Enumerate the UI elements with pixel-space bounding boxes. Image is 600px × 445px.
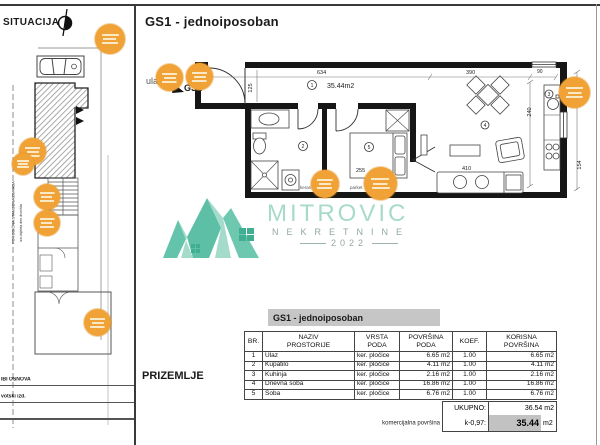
table-header-row: BR. NAZIVPROSTORIJE VRSTAPODA POVRŠINAPO…	[245, 332, 557, 352]
cell: 1.00	[453, 361, 487, 371]
svg-text:4: 4	[484, 123, 487, 129]
cell: 5	[245, 390, 263, 400]
annotation-marker	[34, 210, 60, 236]
table-title-band: GS1 - jednoiposoban	[268, 309, 440, 326]
site-note-vertical-2: iza objekta deo dvorišta	[19, 204, 23, 242]
table-row: 5 Soba ker. pločice 6.76 m2 1.00 6.76 m2	[245, 390, 557, 400]
svg-text:125: 125	[248, 83, 254, 92]
annotation-marker	[84, 309, 111, 336]
armchair	[495, 137, 524, 163]
tv-stand	[421, 135, 427, 155]
watermark-year: 2022	[300, 238, 398, 248]
svg-text:1: 1	[311, 83, 314, 89]
year-dash-left	[300, 243, 326, 244]
wardrobe	[386, 110, 409, 131]
dining-set	[467, 76, 509, 114]
entry-door	[209, 68, 245, 104]
cell: 16.86 m2	[487, 380, 557, 390]
floor-label: PRIZEMLJE	[142, 370, 204, 382]
document-page: SITUACIJA	[0, 0, 600, 445]
table-row: 4 Dnevna soba ker. pločice 16.86 m2 1.00…	[245, 380, 557, 390]
sink	[251, 110, 289, 128]
commercial-value: 35.44	[489, 415, 541, 431]
commercial-area-label: komercijalna površina	[359, 420, 440, 426]
watermark-subtitle: NEKRETNINE	[272, 227, 410, 237]
shower	[251, 161, 278, 189]
cell: ker. pločice	[355, 352, 400, 362]
svg-text:410: 410	[462, 166, 471, 172]
cell: ker. pločice	[355, 361, 400, 371]
svg-text:5: 5	[368, 145, 371, 151]
col-header-korisna: KORISNAPOVRŠINA	[487, 332, 557, 352]
bathroom-door	[298, 109, 318, 129]
building-footprint	[35, 83, 88, 178]
cell: 1.00	[453, 352, 487, 362]
cell: 16.86 m2	[400, 380, 453, 390]
svg-text:90: 90	[537, 69, 543, 75]
watermark-logo	[163, 192, 263, 262]
cell: 1.00	[453, 380, 487, 390]
footer-line-2	[0, 402, 134, 403]
cell: Kuhinja	[263, 371, 355, 381]
washing-machine	[282, 170, 299, 190]
coef-label: k-0,97:	[443, 415, 489, 431]
total-value: 36.54 m2	[489, 402, 556, 415]
col-header-naziv: NAZIVPROSTORIJE	[263, 332, 355, 352]
annotation-marker	[34, 184, 60, 210]
table-row: 3 Kuhinja ker. pločice 2.16 m2 1.00 2.16…	[245, 371, 557, 381]
coffee-table	[450, 145, 480, 156]
sofa	[437, 172, 523, 193]
entrance-arrow	[76, 117, 84, 125]
svg-text:parket: parket	[350, 185, 363, 190]
cell: 1	[245, 352, 263, 362]
annotation-marker	[559, 77, 590, 108]
plan-title: GS1 - jednoiposoban	[145, 14, 279, 29]
frame-top-line	[0, 4, 600, 6]
col-header-br: BR.	[245, 332, 263, 352]
cell: 4.11 m2	[487, 361, 557, 371]
cell: Ulaz	[263, 352, 355, 362]
cell: 1.00	[453, 390, 487, 400]
svg-text:390: 390	[466, 70, 475, 76]
cell: 2.16 m2	[400, 371, 453, 381]
annotation-marker	[156, 64, 183, 91]
cell: 6.76 m2	[400, 390, 453, 400]
cell: 1.00	[453, 371, 487, 381]
commercial-unit: m2	[541, 415, 556, 431]
commercial-row: k-0,97: 35.44 m2	[442, 415, 557, 432]
table-title: GS1 - jednoiposoban	[273, 313, 363, 323]
bedroom-door	[336, 109, 358, 131]
annotation-marker	[364, 167, 397, 200]
svg-text:2: 2	[302, 144, 305, 150]
col-header-vrsta: VRSTAPODA	[355, 332, 400, 352]
svg-text:3: 3	[548, 92, 551, 98]
svg-text:154: 154	[577, 160, 583, 169]
cell: 3	[245, 371, 263, 381]
watermark-brand: MITROVIC	[267, 200, 408, 228]
footer-line-1	[0, 385, 134, 386]
cell: 4.11 m2	[400, 361, 453, 371]
svg-text:634: 634	[317, 70, 326, 76]
year-text: 2022	[331, 238, 367, 248]
footer-label-2: votski izd.	[1, 394, 26, 399]
footer-line-3	[0, 418, 134, 420]
footer-label-1: IBI OSNOVA	[1, 377, 31, 382]
cell: ker. pločice	[355, 390, 400, 400]
toilet	[253, 133, 266, 154]
cell: ker. pločice	[355, 380, 400, 390]
cell: 2.16 m2	[487, 371, 557, 381]
svg-text:35.44m2: 35.44m2	[327, 83, 354, 90]
table-row: 1 Ulaz ker. pločice 6.65 m2 1.00 6.65 m2	[245, 352, 557, 362]
total-row: UKUPNO: 36.54 m2	[442, 401, 557, 416]
annotation-marker	[311, 170, 339, 198]
total-label: UKUPNO:	[443, 402, 489, 415]
situation-title: SITUACIJA	[3, 17, 59, 28]
table-row: 2 Kupatilo ker. pločice 4.11 m2 1.00 4.1…	[245, 361, 557, 371]
annotation-marker	[12, 153, 34, 175]
cell: 6.76 m2	[487, 390, 557, 400]
parked-car	[37, 56, 84, 77]
svg-text:240: 240	[527, 107, 533, 116]
site-note-vertical-1: PORODIČNA STAMBENA ZGRADA	[12, 181, 16, 244]
north-arrow-icon	[54, 9, 76, 36]
annotation-marker	[186, 63, 213, 90]
col-header-povrsina: POVRŠINAPODA	[400, 332, 453, 352]
cell: 6.65 m2	[400, 352, 453, 362]
year-dash-right	[372, 243, 398, 244]
bathroom-fixtures	[251, 110, 299, 190]
cell: Soba	[263, 390, 355, 400]
cell: Dnevna soba	[263, 380, 355, 390]
unit-area-label: 1 35.44m2	[308, 81, 355, 91]
cell: ker. pločice	[355, 371, 400, 381]
annotation-marker	[95, 24, 125, 54]
panel-divider-line	[134, 4, 136, 445]
col-header-koef: KOEF.	[453, 332, 487, 352]
kitchen-fixtures	[544, 85, 560, 170]
cell: Kupatilo	[263, 361, 355, 371]
svg-text:255: 255	[356, 168, 365, 174]
cell: 6.65 m2	[487, 352, 557, 362]
area-table: BR. NAZIVPROSTORIJE VRSTAPODA POVRŠINAPO…	[244, 331, 557, 400]
cell: 2	[245, 361, 263, 371]
cell: 4	[245, 380, 263, 390]
living-furniture	[421, 76, 525, 193]
